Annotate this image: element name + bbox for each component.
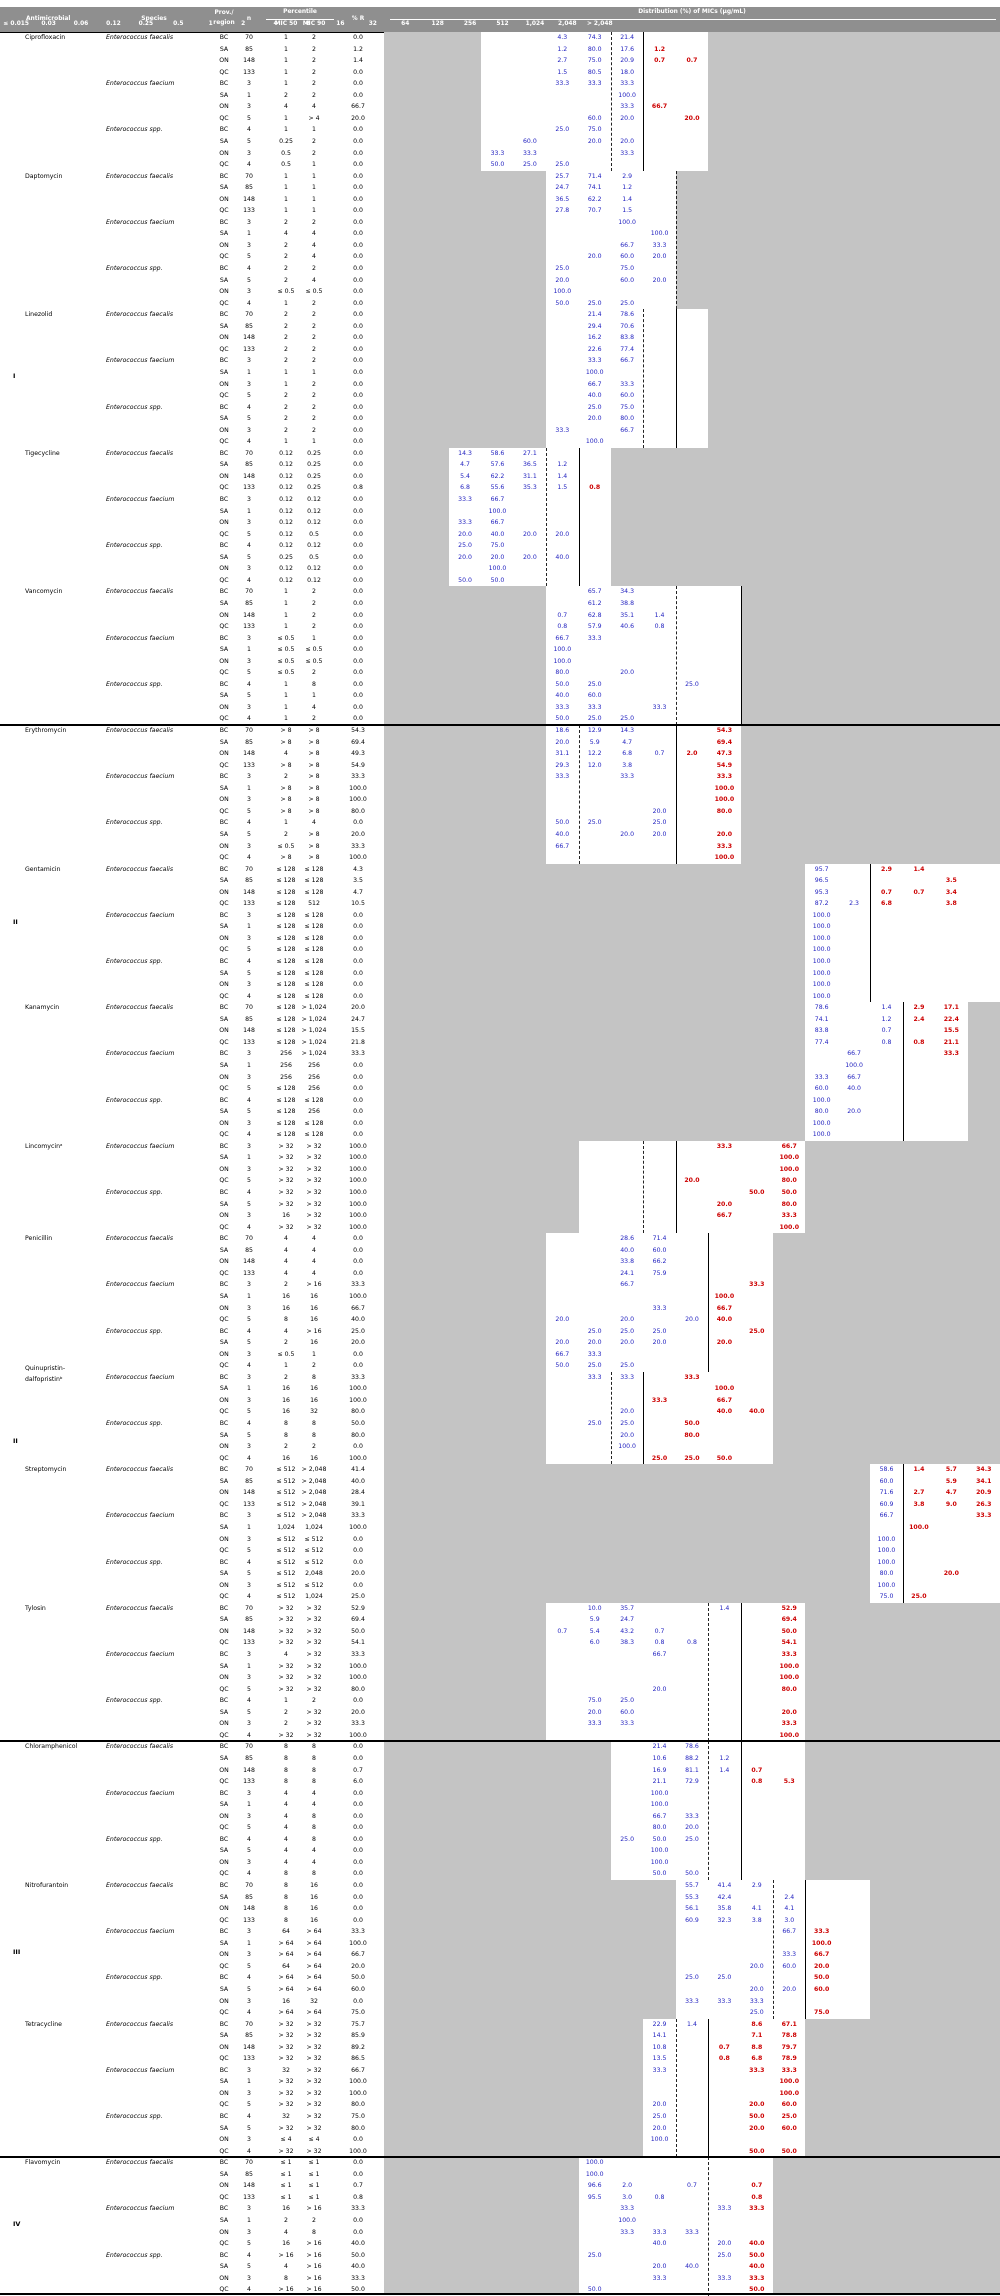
mic-distribution-value: 5.9 (579, 737, 611, 749)
mic90-cell: > 32 (294, 1175, 334, 1187)
susceptible-breakpoint-line (708, 1603, 709, 1742)
mic-distribution-value: 0.7 (741, 2180, 773, 2192)
mic90-cell: 4 (294, 1245, 334, 1257)
species-label: Enterococcus faecalis (106, 725, 202, 737)
pct-r-cell: 0.0 (338, 1822, 378, 1834)
n-cell: 3 (234, 101, 264, 113)
pct-r-cell: 0.0 (338, 656, 378, 668)
mic-distribution-value: 20.0 (708, 829, 740, 841)
pct-r-cell: 24.7 (338, 1014, 378, 1026)
pct-r-cell: 33.3 (338, 1372, 378, 1384)
resistant-breakpoint-line (903, 1464, 904, 1603)
mic-distribution-value: 62.8 (579, 610, 611, 622)
pct-r-cell: 33.3 (338, 1510, 378, 1522)
mic-distribution-value: 0.7 (708, 2042, 740, 2054)
mic-distribution-value: 2.7 (546, 55, 578, 67)
n-cell: 70 (234, 2019, 264, 2031)
mic90-cell: 0.25 (294, 448, 334, 460)
mic90-cell: 4 (294, 275, 334, 287)
pct-r-cell: 33.3 (338, 1718, 378, 1730)
n-cell: 70 (234, 1464, 264, 1476)
mic90-cell: ≤ 128 (294, 956, 334, 968)
n-cell: 5 (234, 1199, 264, 1211)
mic90-cell: 16 (294, 1395, 334, 1407)
n-cell: 5 (234, 1175, 264, 1187)
n-cell: 4 (234, 1095, 264, 1107)
pct-r-cell: 0.0 (338, 402, 378, 414)
pct-r-cell: 0.0 (338, 563, 378, 575)
mic90-cell: > 32 (294, 1684, 334, 1696)
susceptible-breakpoint-line (676, 171, 677, 310)
mic-distribution-value: 25.0 (611, 1834, 643, 1846)
mic-distribution-value: 3.8 (741, 1915, 773, 1927)
n-cell: 4 (234, 402, 264, 414)
pct-r-cell: 20.0 (338, 1961, 378, 1973)
mic-distribution-value: 28.6 (611, 1233, 643, 1245)
species-label: Enterococcus faecium (106, 1048, 202, 1060)
n-cell: 5 (234, 136, 264, 148)
mic-distribution-value: 33.3 (579, 633, 611, 645)
pct-r-cell: 0.0 (338, 67, 378, 79)
mic-distribution-value: 20.0 (643, 1684, 675, 1696)
mic-distribution-value: 20.0 (643, 806, 675, 818)
conc-col-header: 16 (324, 21, 356, 27)
mic90-cell: ≤ 512 (294, 1580, 334, 1592)
mic90-cell: > 16 (294, 1279, 334, 1291)
n-cell: 133 (234, 344, 264, 356)
n-cell: 5 (234, 1961, 264, 1973)
mic-distribution-value: 20.0 (643, 1337, 675, 1349)
mic-distribution-value: 77.4 (611, 344, 643, 356)
pct-r-cell: 80.0 (338, 1684, 378, 1696)
species-label: Enterococcus faecium (106, 355, 202, 367)
pct-r-cell: 0.0 (338, 1118, 378, 1130)
mic90-cell: ≤ 128 (294, 1118, 334, 1130)
mic-distribution-value: 33.3 (546, 702, 578, 714)
mic-distribution-value: 0.7 (546, 610, 578, 622)
pct-r-cell: 41.4 (338, 1464, 378, 1476)
pct-r-cell: 0.0 (338, 332, 378, 344)
mic90-cell: ≤ 128 (294, 910, 334, 922)
mic-distribution-value: 35.7 (611, 1603, 643, 1615)
species-label: Enterococcus faecalis (106, 2157, 202, 2169)
mic-distribution-value: 100.0 (579, 436, 611, 448)
mic-distribution-value: 33.3 (611, 1718, 643, 1730)
n-cell: 4 (234, 124, 264, 136)
pct-r-cell: 0.0 (338, 390, 378, 402)
mic-distribution-value: 33.3 (708, 771, 740, 783)
mic90-cell: 4 (294, 1845, 334, 1857)
mic-distribution-value: 50.0 (676, 1868, 708, 1880)
mic90-cell: 1 (294, 367, 334, 379)
mic90-cell: ≤ 1 (294, 2180, 334, 2192)
n-cell: 133 (234, 205, 264, 217)
mic90-cell: ≤ 0.5 (294, 286, 334, 298)
mic90-cell: 1 (294, 633, 334, 645)
mic-distribution-value: 20.0 (741, 2123, 773, 2135)
mic-distribution-value: 0.8 (903, 1037, 935, 1049)
mic-distribution-value: 1.2 (870, 1014, 902, 1026)
n-cell: 1 (234, 644, 264, 656)
mic-distribution-value: 40.0 (546, 690, 578, 702)
n-cell: 4 (234, 852, 264, 864)
mic90-cell: 1 (294, 124, 334, 136)
mic-distribution-value: 75.0 (870, 1591, 902, 1603)
category-roman-numeral: IV (13, 2220, 20, 2228)
conc-col-header: ≤ 0.015 (0, 21, 32, 27)
mic-distribution-value: 16.2 (579, 332, 611, 344)
mic-distribution-value: 58.6 (481, 448, 513, 460)
mic-distribution-value: 83.8 (805, 1025, 837, 1037)
mic90-cell: > 8 (294, 852, 334, 864)
mic-distribution-value: 25.0 (579, 817, 611, 829)
pct-r-cell: 54.3 (338, 725, 378, 737)
pct-r-cell: 0.0 (338, 610, 378, 622)
mic-distribution-value: 20.9 (611, 55, 643, 67)
mic-distribution-value: 55.7 (676, 1880, 708, 1892)
mic-distribution-value: 2.7 (903, 1487, 935, 1499)
mic-distribution-value: 66.7 (611, 1279, 643, 1291)
species-label: Enterococcus faecalis (106, 864, 202, 876)
mic-distribution-value: 50.0 (773, 1187, 805, 1199)
mic90-cell: > 32 (294, 2019, 334, 2031)
n-cell: 3 (234, 217, 264, 229)
mic-distribution-value: 9.0 (935, 1499, 967, 1511)
pct-r-cell: 0.0 (338, 182, 378, 194)
pct-r-cell: 0.0 (338, 586, 378, 598)
species-label: Enterococcus faecium (106, 1649, 202, 1661)
mic90-cell: > 32 (294, 2065, 334, 2077)
mic90-cell: ≤ 512 (294, 1534, 334, 1546)
mic-distribution-value: 12.9 (579, 725, 611, 737)
resistant-breakpoint-line (741, 586, 742, 725)
n-cell: 85 (234, 459, 264, 471)
mic-distribution-value: 0.8 (643, 1637, 675, 1649)
antimicrobial-label: Kanamycin (25, 1002, 59, 1014)
mic-distribution-value: 67.1 (773, 2019, 805, 2031)
mic90-cell: ≤ 128 (294, 887, 334, 899)
mic-distribution-value: 75.0 (579, 55, 611, 67)
header-antimicrobial: Antimicrobial (26, 7, 70, 32)
n-cell: 3 (234, 355, 264, 367)
mic90-cell: > 32 (294, 1187, 334, 1199)
percentile-underline (266, 19, 334, 20)
mic-distribution-value: 1.2 (708, 1753, 740, 1765)
species-label: Enterococcus spp. (106, 1326, 202, 1338)
n-cell: 133 (234, 482, 264, 494)
mic90-cell: 2 (294, 425, 334, 437)
mic90-cell: 2 (294, 55, 334, 67)
n-cell: 148 (234, 2042, 264, 2054)
mic-distribution-value: 66.7 (773, 1926, 805, 1938)
mic90-cell: > 8 (294, 829, 334, 841)
pct-r-cell: 33.3 (338, 1048, 378, 1060)
mic90-cell: 8 (294, 679, 334, 691)
mic-distribution-value: 50.0 (708, 1453, 740, 1465)
conc-col-header: 32 (357, 21, 389, 27)
mic-distribution-value: 5.9 (935, 1476, 967, 1488)
mic-distribution-value: 27.8 (546, 205, 578, 217)
mic90-cell: 2 (294, 1695, 334, 1707)
mic-distribution-value: 100.0 (708, 1383, 740, 1395)
mic-distribution-value: 56.1 (676, 1903, 708, 1915)
n-cell: 3 (234, 933, 264, 945)
header-percentile: Percentile (264, 9, 336, 15)
species-label: Enterococcus faecium (106, 1372, 202, 1384)
mic-distribution-value: 20.0 (449, 552, 481, 564)
pct-r-cell: 80.0 (338, 2123, 378, 2135)
n-cell: 1 (234, 1799, 264, 1811)
mic-distribution-value: 20.0 (514, 552, 546, 564)
mic-distribution-value: 4.1 (741, 1903, 773, 1915)
n-cell: 148 (234, 1256, 264, 1268)
n-cell: 3 (234, 78, 264, 90)
mic-distribution-value: 100.0 (805, 1118, 837, 1130)
pct-r-cell: 0.0 (338, 448, 378, 460)
mic-distribution-value: 20.0 (579, 1707, 611, 1719)
pct-r-cell: 33.3 (338, 841, 378, 853)
n-cell: 3 (234, 2273, 264, 2285)
n-cell: 85 (234, 44, 264, 56)
pct-r-cell: 0.0 (338, 506, 378, 518)
mic90-cell: 8 (294, 2227, 334, 2239)
mic-distribution-value: 20.0 (579, 136, 611, 148)
pct-r-cell: 0.0 (338, 1857, 378, 1869)
n-cell: 3 (234, 1718, 264, 1730)
mic-distribution-value: 20.0 (546, 529, 578, 541)
pct-r-cell: 0.0 (338, 159, 378, 171)
resistant-breakpoint-line (579, 448, 580, 587)
mic-distribution-value: 66.7 (579, 379, 611, 391)
species-label: Enterococcus spp. (106, 1095, 202, 1107)
conc-col-header: 256 (454, 21, 486, 27)
mic-distribution-value: 40.0 (838, 1083, 870, 1095)
mic-distribution-value: 20.0 (643, 2261, 675, 2273)
mic-distribution-value: 25.0 (611, 1326, 643, 1338)
n-cell: 5 (234, 529, 264, 541)
mic-distribution-value: 2.3 (838, 898, 870, 910)
mic-distribution-value: 33.3 (449, 494, 481, 506)
n-cell: 1 (234, 228, 264, 240)
pct-r-cell: 0.0 (338, 436, 378, 448)
mic90-cell: > 8 (294, 748, 334, 760)
mic-distribution-value: 100.0 (805, 968, 837, 980)
pct-r-cell: 6.0 (338, 1776, 378, 1788)
n-cell: 1 (234, 367, 264, 379)
mic90-cell: 16 (294, 1314, 334, 1326)
mic90-cell: 4 (294, 1256, 334, 1268)
pct-r-cell: 0.0 (338, 679, 378, 691)
n-cell: 5 (234, 1083, 264, 1095)
mic90-cell: 2 (294, 90, 334, 102)
mic-distribution-value: 33.3 (643, 2065, 675, 2077)
n-cell: 4 (234, 956, 264, 968)
n-cell: 4 (234, 1187, 264, 1199)
mic-distribution-value: 5.9 (579, 1614, 611, 1626)
n-cell: 3 (234, 771, 264, 783)
n-cell: 148 (234, 332, 264, 344)
species-label: Enterococcus spp. (106, 124, 202, 136)
n-cell: 3 (234, 2227, 264, 2239)
pct-r-cell: 33.3 (338, 771, 378, 783)
n-cell: 5 (234, 806, 264, 818)
mic90-cell: ≤ 128 (294, 921, 334, 933)
mic-distribution-value: 33.3 (773, 2065, 805, 2077)
pct-r-cell: 0.0 (338, 1245, 378, 1257)
pct-r-cell: 0.0 (338, 1811, 378, 1823)
mic-distribution-value: 100.0 (643, 228, 675, 240)
n-cell: 3 (234, 633, 264, 645)
n-cell: 70 (234, 32, 264, 44)
mic-distribution-value: 10.8 (643, 2042, 675, 2054)
mic90-cell: > 8 (294, 771, 334, 783)
mic90-cell: > 32 (294, 1210, 334, 1222)
n-cell: 3 (234, 1649, 264, 1661)
mic-distribution-value: 5.4 (449, 471, 481, 483)
species-label: Enterococcus faecium (106, 494, 202, 506)
mic-distribution-value: 74.1 (579, 182, 611, 194)
pct-r-cell: 40.0 (338, 1476, 378, 1488)
mic-distribution-value: 0.8 (579, 482, 611, 494)
pct-r-cell: 100.0 (338, 1141, 378, 1153)
mic90-cell: > 8 (294, 806, 334, 818)
mic-distribution-value: 20.0 (805, 1961, 837, 1973)
mic-distribution-value: 100.0 (805, 1938, 837, 1950)
n-cell: 1 (234, 90, 264, 102)
pct-r-cell: 0.0 (338, 1868, 378, 1880)
mic90-cell: > 32 (294, 1164, 334, 1176)
mic90-cell: 2 (294, 67, 334, 79)
n-cell: 3 (234, 702, 264, 714)
n-cell: 5 (234, 1568, 264, 1580)
n-cell: 3 (234, 1510, 264, 1522)
mic-distribution-value: 1.5 (546, 67, 578, 79)
pct-r-cell: 100.0 (338, 1210, 378, 1222)
mic-distribution-value: 35.1 (611, 610, 643, 622)
mic-distribution-value: 20.0 (643, 275, 675, 287)
mic90-cell: 16 (294, 1453, 334, 1465)
species-label: Enterococcus spp. (106, 1695, 202, 1707)
pct-r-cell: 0.0 (338, 124, 378, 136)
pct-r-cell: 0.0 (338, 968, 378, 980)
pct-r-cell: 100.0 (338, 1522, 378, 1534)
n-cell: 3 (234, 1349, 264, 1361)
pct-r-cell: 100.0 (338, 2076, 378, 2088)
n-cell: 85 (234, 1014, 264, 1026)
mic90-cell: 4 (294, 1268, 334, 1280)
mic-distribution-value: 100.0 (708, 783, 740, 795)
species-label: Enterococcus spp. (106, 956, 202, 968)
mic90-cell: > 64 (294, 1938, 334, 1950)
mic90-cell: > 2,048 (294, 1464, 334, 1476)
mic-distribution-value: 100.0 (579, 367, 611, 379)
susceptible-breakpoint-line (676, 2019, 677, 2158)
mic90-cell: 2 (294, 402, 334, 414)
antimicrobial-label: Lincomycinᵃ (25, 1141, 62, 1153)
mic-distribution-value: 3.8 (611, 760, 643, 772)
pct-r-cell: 0.0 (338, 344, 378, 356)
n-cell: 1 (234, 921, 264, 933)
mic90-cell: ≤ 1 (294, 2192, 334, 2204)
mic-distribution-value: 66.7 (643, 101, 675, 113)
mic90-cell: > 32 (294, 1222, 334, 1234)
n-cell: 85 (234, 182, 264, 194)
mic90-cell: 4 (294, 1799, 334, 1811)
n-cell: 5 (234, 2261, 264, 2273)
mic90-cell: 4 (294, 702, 334, 714)
conc-col-header: 64 (389, 21, 421, 27)
mic-distribution-value: 100.0 (805, 1095, 837, 1107)
n-cell: 3 (234, 1811, 264, 1823)
mic-distribution-value: 20.0 (643, 2099, 675, 2111)
mic90-cell: > 32 (294, 2123, 334, 2135)
mic-distribution-value: 83.8 (611, 332, 643, 344)
n-cell: 5 (234, 968, 264, 980)
mic-distribution-value: 100.0 (773, 1164, 805, 1176)
pct-r-cell: 0.0 (338, 1892, 378, 1904)
mic-distribution-value: 3.8 (903, 1499, 935, 1511)
pct-r-cell: 52.9 (338, 1603, 378, 1615)
pct-r-cell: 0.0 (338, 1129, 378, 1141)
category-roman-numeral: II (13, 1437, 18, 1445)
pct-r-cell: 86.5 (338, 2053, 378, 2065)
mic-distribution-value: 100.0 (838, 1060, 870, 1072)
antimicrobial-label: Erythromycin (25, 725, 66, 737)
mic-distribution-value: 80.0 (611, 413, 643, 425)
mic90-cell: > 16 (294, 2250, 334, 2262)
mic-distribution-value: 100.0 (805, 979, 837, 991)
mic90-cell: 2 (294, 1360, 334, 1372)
mic-distribution-value: 100.0 (643, 1788, 675, 1800)
mic-distribution-value: 100.0 (773, 1661, 805, 1673)
mic-distribution-value: 3.8 (935, 898, 967, 910)
n-cell: 4 (234, 2111, 264, 2123)
mic90-cell: > 32 (294, 2030, 334, 2042)
mic90-cell: 1 (294, 1349, 334, 1361)
mic-distribution-value: 3.0 (773, 1915, 805, 1927)
pct-r-cell: 0.0 (338, 1072, 378, 1084)
mic-distribution-value: 79.7 (773, 2042, 805, 2054)
pct-r-cell: 89.2 (338, 2042, 378, 2054)
mic90-cell: 2 (294, 1441, 334, 1453)
mic-distribution-value: 40.0 (611, 1245, 643, 1257)
species-label: Enterococcus faecalis (106, 309, 202, 321)
n-cell: 3 (234, 1072, 264, 1084)
mic-distribution-value: 0.7 (741, 1765, 773, 1777)
n-cell: 85 (234, 321, 264, 333)
mic-distribution-value: 6.8 (870, 898, 902, 910)
mic-distribution-value: 81.1 (676, 1765, 708, 1777)
mic-distribution-value: 33.3 (773, 1649, 805, 1661)
mic90-cell: ≤ 1 (294, 2169, 334, 2181)
pct-r-cell: 80.0 (338, 1406, 378, 1418)
pct-r-cell: 3.5 (338, 875, 378, 887)
mic-distribution-value: 33.3 (741, 2065, 773, 2077)
species-label: Enterococcus spp. (106, 1557, 202, 1569)
n-cell: 1 (234, 506, 264, 518)
mic-distribution-value: 0.7 (546, 1626, 578, 1638)
n-cell: 148 (234, 1626, 264, 1638)
mic-distribution-value: 100.0 (773, 1152, 805, 1164)
species-label: Enterococcus faecium (106, 1141, 202, 1153)
mic-distribution-value: 1.2 (546, 459, 578, 471)
mic-distribution-value: 31.1 (546, 748, 578, 760)
mic90-cell: 0.5 (294, 529, 334, 541)
mic90-cell: 2 (294, 586, 334, 598)
mic-distribution-table: Antimicrobial Species Prov./ region n Pe… (0, 0, 1000, 2296)
mic90-cell: 2 (294, 217, 334, 229)
mic-distribution-value: 60.0 (643, 1245, 675, 1257)
